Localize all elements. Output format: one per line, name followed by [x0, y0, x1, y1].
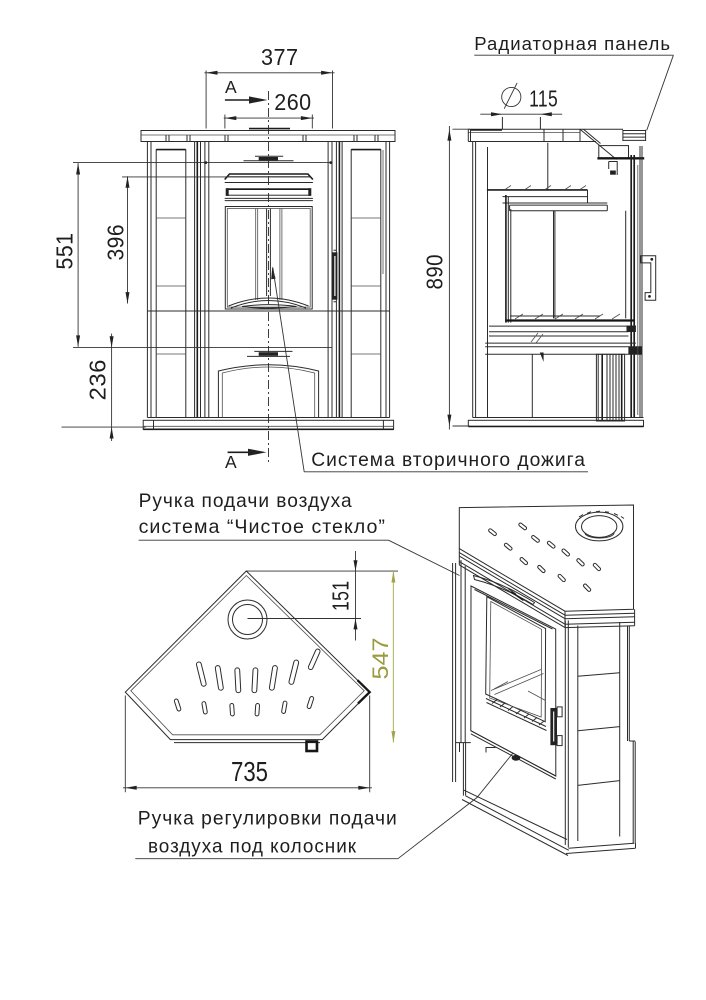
svg-text:воздуха под колосник: воздуха под колосник [148, 836, 357, 858]
svg-text:735: 735 [231, 756, 268, 787]
svg-text:система “Чистое стекло”: система “Чистое стекло” [139, 516, 386, 538]
svg-text:547: 547 [368, 638, 393, 680]
svg-text:A: A [225, 452, 238, 472]
svg-text:Ручка подачи воздуха: Ручка подачи воздуха [139, 490, 353, 512]
svg-text:236: 236 [85, 359, 111, 401]
svg-text:Радиаторная панель: Радиаторная панель [474, 33, 671, 54]
svg-text:115: 115 [529, 86, 558, 112]
svg-text:890: 890 [422, 254, 448, 290]
svg-text:A: A [225, 77, 238, 97]
svg-text:396: 396 [103, 224, 129, 261]
svg-text:551: 551 [52, 233, 78, 270]
svg-text:Ручка регулировки подачи: Ручка регулировки подачи [138, 808, 398, 830]
svg-text:260: 260 [274, 89, 311, 115]
svg-text:377: 377 [261, 44, 299, 70]
svg-text:Система вторичного дожига: Система вторичного дожига [311, 449, 586, 471]
svg-text:151: 151 [328, 581, 354, 612]
